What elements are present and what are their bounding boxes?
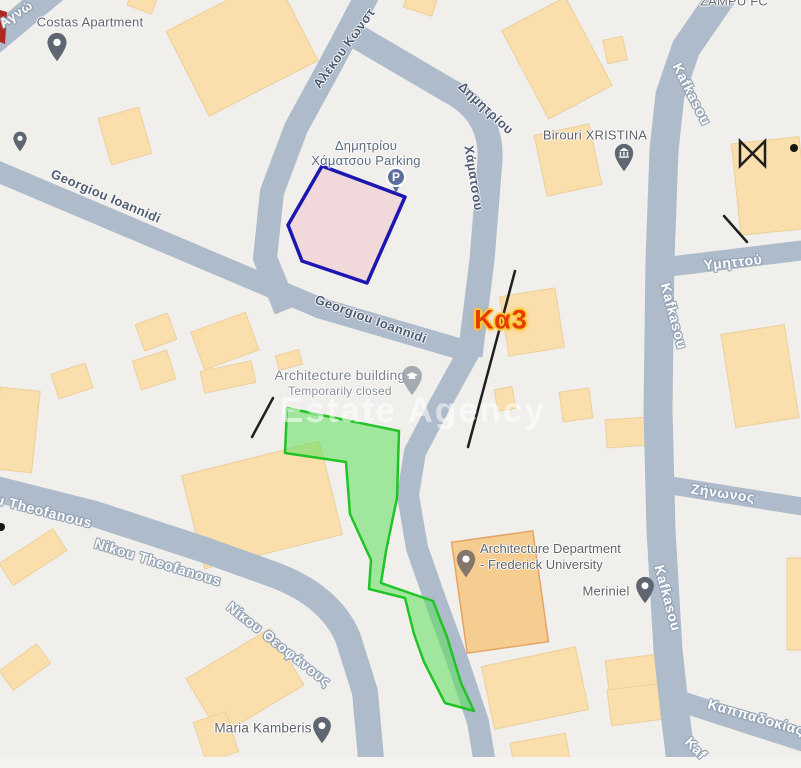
building: [559, 388, 593, 422]
parking-label-line1: Δημητρίου: [311, 138, 420, 153]
poi-label-costas-apartment[interactable]: Costas Apartment: [37, 15, 144, 30]
annotation-dot: [0, 523, 5, 531]
poi-label-zampu-fc[interactable]: ZAMPU FC: [700, 0, 768, 9]
parking-icon[interactable]: P: [386, 167, 406, 187]
poi-label-birouri[interactable]: Birouri XRISTINA: [543, 128, 647, 143]
parking-icon-letter: P: [386, 167, 406, 187]
building: [403, 0, 436, 16]
watermark-text: Estate Agency: [280, 391, 546, 431]
maria-kamberis-pin[interactable]: [312, 716, 332, 744]
architecture-building-name: Architecture building: [274, 367, 405, 383]
costas-apartment-pin[interactable]: [46, 32, 68, 62]
building: [135, 313, 177, 351]
building: [132, 350, 176, 390]
road-kafkasou: [658, 0, 726, 768]
map-bottom-fade: [0, 757, 801, 768]
building: [166, 0, 318, 116]
road-poi-pin[interactable]: [13, 131, 28, 152]
building: [721, 325, 799, 428]
annotation-dot: [790, 144, 798, 152]
building: [127, 0, 157, 14]
poi-label-meriniel[interactable]: Meriniel: [582, 584, 629, 599]
architecture-building-pin[interactable]: [401, 365, 424, 396]
annotation-line: [252, 398, 273, 437]
building: [0, 529, 67, 586]
building: [0, 387, 40, 473]
map-canvas[interactable]: Αγνώ Georgiou Ioannidi Georgiou Ioannidi…: [0, 0, 801, 768]
meriniel-pin[interactable]: [635, 576, 655, 604]
building: [98, 107, 152, 165]
architecture-department-pin[interactable]: [456, 549, 477, 578]
region-code-label: Κα3: [474, 305, 528, 336]
poi-label-maria-kamberis[interactable]: Maria Kamberis: [214, 721, 311, 736]
building: [481, 647, 588, 730]
architecture-department-line1: Architecture Department: [480, 541, 621, 557]
building: [0, 644, 51, 690]
building: [603, 36, 628, 64]
birouri-museum-pin[interactable]: [614, 143, 635, 172]
poi-label-architecture-department[interactable]: Architecture Department - Frederick Univ…: [480, 541, 621, 573]
architecture-department-line2: - Frederick University: [480, 557, 621, 573]
building: [502, 0, 613, 119]
parking-label-line2: Χάματσου Parking: [311, 153, 420, 168]
building: [787, 558, 801, 650]
building: [51, 363, 93, 399]
poi-label-parking[interactable]: Δημητρίου Χάματσου Parking: [311, 138, 420, 168]
